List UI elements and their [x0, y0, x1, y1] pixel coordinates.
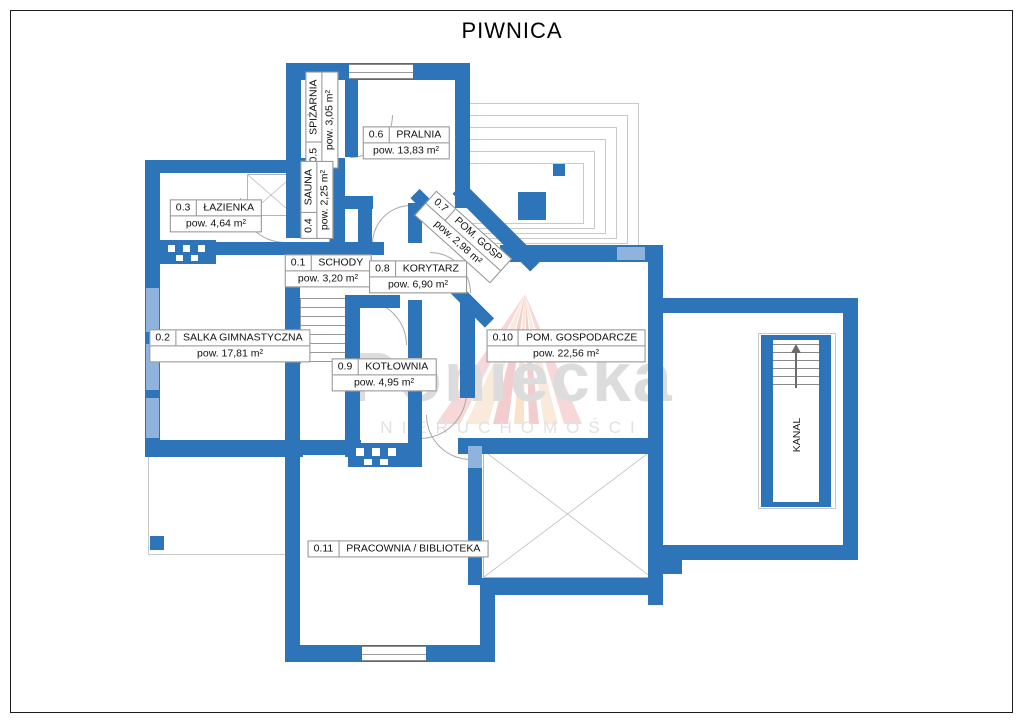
wall-notch: [168, 245, 175, 252]
room-label-kotlownia: 0.9KOTŁOWNIA pow. 4,95 m²: [332, 358, 437, 391]
wall-segment: [408, 300, 422, 358]
window: [349, 64, 413, 79]
wall-segment: [408, 388, 422, 448]
room-label-korytarz: 0.8KORYTARZ pow. 6,90 m²: [369, 260, 467, 293]
wall-segment: [286, 63, 301, 238]
wall-notch: [183, 245, 190, 252]
pillar: [518, 192, 546, 220]
stairs-direction-line: [795, 352, 797, 388]
floor-plan: PIWNICA Poniecka NIERUCHOMOŚCI: [0, 0, 1024, 724]
pillar: [553, 164, 565, 176]
room-label-lazienka: 0.3ŁAZIENKA pow. 4,64 m²: [170, 199, 262, 232]
wall-notch: [198, 245, 205, 252]
wall-segment: [482, 578, 652, 595]
wall-segment: [761, 337, 773, 505]
wall-segment: [155, 160, 292, 173]
wall-notch: [356, 448, 364, 456]
unexcavated-area: [483, 450, 652, 578]
wall-segment: [358, 295, 400, 308]
wall-segment: [460, 302, 475, 398]
wall-segment: [145, 440, 303, 457]
wall-segment: [648, 245, 663, 605]
wall-segment: [663, 545, 858, 560]
wall-segment: [158, 240, 216, 264]
window: [362, 646, 426, 661]
room-label-spizarnia: 0.5SPIŻARNIA pow. 3,05 m²: [305, 71, 338, 168]
wall-segment: [663, 298, 858, 313]
window: [468, 446, 482, 468]
wall-segment: [480, 578, 495, 662]
wall-notch: [191, 255, 198, 261]
room-label-pracownia-biblioteka: 0.11PRACOWNIA / BIBLIOTEKA: [308, 540, 489, 557]
window: [146, 288, 159, 332]
wall-notch: [176, 255, 183, 261]
room-label-pom-gospodarcze: 0.10POM. GOSPODARCZE pow. 22,56 m²: [487, 329, 646, 362]
window: [146, 398, 159, 438]
room-label-schody: 0.1SCHODY pow. 3,20 m²: [285, 254, 372, 287]
wall-segment: [458, 438, 658, 454]
wall-segment: [358, 208, 372, 244]
plan-title: PIWNICA: [0, 18, 1024, 44]
wall-segment: [843, 298, 858, 560]
wall-segment: [345, 79, 358, 157]
wall-segment: [819, 337, 831, 505]
terrace-outline: [148, 455, 290, 555]
wall-segment: [648, 558, 682, 574]
room-label-salka-gimnastyczna: 0.2SALKA GIMNASTYCZNA pow. 17,81 m²: [149, 329, 310, 362]
room-label-pralnia: 0.6PRALNIA pow. 13,83 m²: [363, 126, 450, 159]
wall-notch: [364, 459, 372, 465]
kanal-label: KANAL: [791, 418, 803, 452]
window: [617, 247, 645, 260]
pillar: [150, 536, 164, 550]
room-label-sauna: 0.4SAUNA pow. 2,25 m²: [300, 161, 333, 239]
wall-notch: [388, 448, 396, 456]
wall-segment: [761, 502, 831, 507]
stairs-up-arrow-icon: [791, 344, 801, 353]
watermark-subtitle: NIERUCHOMOŚCI: [350, 418, 673, 438]
wall-segment: [285, 440, 300, 662]
wall-notch: [372, 448, 380, 456]
wall-notch: [380, 459, 388, 465]
